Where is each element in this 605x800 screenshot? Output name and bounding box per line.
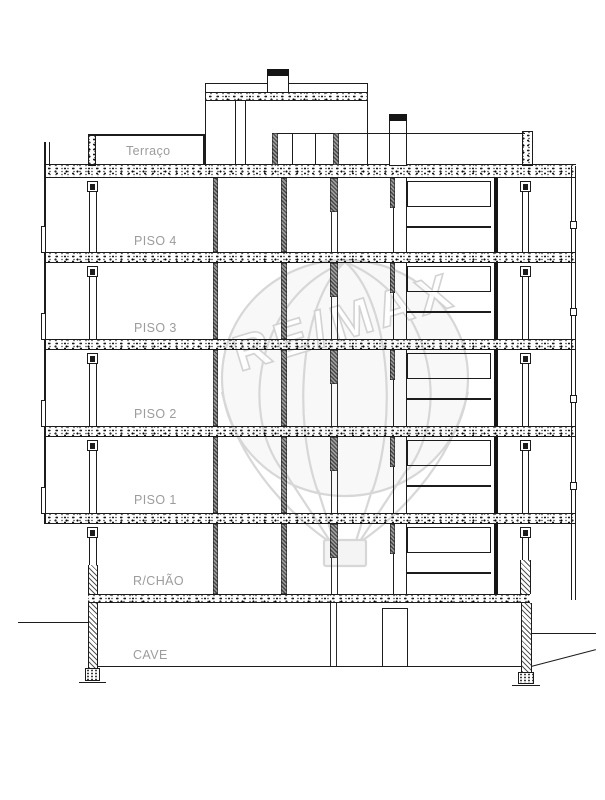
window-left — [89, 538, 97, 565]
floor-label: CAVE — [133, 648, 213, 664]
footing-right — [518, 672, 534, 684]
penthouse-mullion — [315, 133, 316, 165]
shaft-wall — [331, 297, 338, 339]
wall-line — [393, 208, 394, 252]
ground-line-left — [18, 622, 88, 623]
basement-door — [382, 608, 408, 666]
sill-wall-right — [520, 560, 531, 594]
shutter-box-dot — [90, 356, 95, 362]
sill-wall-left — [88, 565, 98, 594]
floor-label: PISO 2 — [134, 407, 214, 423]
window-left — [89, 277, 97, 339]
window-right — [522, 538, 530, 560]
floor-slab — [44, 513, 576, 524]
stair-wall — [494, 437, 498, 513]
footing-baseline-left — [79, 682, 106, 684]
stair-handrail — [407, 572, 491, 574]
window-right — [522, 451, 530, 513]
stair-handrail — [407, 226, 491, 228]
railing-cap-right — [570, 221, 578, 229]
shaft-lintel — [330, 524, 338, 558]
window-right — [522, 277, 530, 339]
wall-lintel — [390, 350, 395, 380]
penthouse-pier — [272, 133, 278, 165]
stair-handrail — [407, 485, 491, 487]
wall-line — [393, 554, 394, 594]
shaft-lintel — [330, 263, 338, 297]
floor-slab — [44, 339, 576, 350]
stair-wall — [494, 178, 498, 252]
terrace-parapet-wall-right — [522, 131, 533, 166]
window-left — [89, 364, 97, 426]
floor-label: PISO 3 — [134, 321, 214, 337]
window-right — [522, 192, 530, 252]
shaft-wall — [331, 471, 338, 513]
floor-slab — [88, 594, 530, 603]
railing-cap-right — [570, 395, 578, 403]
architectural-section-sheet: RE/MAX TerraçoPISO 4PISO 3PISO 2PISO 1R/… — [0, 0, 605, 800]
railing-cap-right — [570, 482, 578, 490]
wall-line — [393, 467, 394, 513]
basement-wall-left — [88, 603, 98, 668]
shutter-box-dot — [523, 269, 528, 275]
shutter-box-dot — [523, 530, 528, 536]
floor-slab — [44, 164, 576, 178]
floor-label: Terraço — [126, 144, 206, 160]
column — [281, 437, 287, 513]
wall-lintel — [390, 263, 395, 293]
stair-handrail — [407, 311, 491, 313]
chimney — [389, 114, 407, 166]
ground-line-right — [531, 633, 596, 634]
stair-flight — [407, 181, 491, 207]
window-left — [89, 451, 97, 513]
wall-line — [393, 380, 394, 426]
window-right — [522, 364, 530, 426]
shaft-wall — [331, 212, 338, 252]
terrace-parapet-top-right — [368, 133, 525, 135]
terrace-parapet-wall-left — [88, 135, 96, 166]
railing-left — [41, 487, 46, 514]
railing-cap-right — [570, 308, 578, 316]
shutter-box-dot — [90, 530, 95, 536]
terrace-parapet-top-left — [88, 134, 204, 136]
shutter-box-dot — [90, 184, 95, 190]
column — [281, 263, 287, 339]
penthouse-mullion — [292, 133, 293, 165]
footing-left — [85, 668, 100, 681]
column — [281, 524, 287, 594]
floor-slab — [44, 252, 576, 263]
basement-shaft-wall — [330, 603, 337, 666]
wall-lintel — [390, 524, 395, 554]
railing-left — [41, 313, 46, 340]
chimney-cap — [267, 69, 289, 76]
penthouse-partition — [245, 101, 246, 165]
floor-label: PISO 1 — [134, 493, 214, 509]
stair-wall — [494, 350, 498, 426]
shutter-box-dot — [90, 443, 95, 449]
stair-flight — [407, 527, 491, 553]
wall-line — [393, 293, 394, 339]
shaft-lintel — [330, 437, 338, 471]
shutter-box-dot — [523, 356, 528, 362]
column — [281, 178, 287, 252]
floor-label: PISO 4 — [134, 234, 214, 250]
railing-left — [41, 226, 46, 253]
wall-lintel — [390, 178, 395, 208]
stair-handrail — [407, 398, 491, 400]
floor-slab — [44, 426, 576, 437]
stair-flight — [407, 353, 491, 379]
penthouse-roof-slab — [205, 92, 368, 101]
chimney-cap — [389, 114, 407, 121]
railing-left — [41, 400, 46, 427]
shutter-box-dot — [523, 184, 528, 190]
stair-flight — [407, 266, 491, 292]
stair-flight — [407, 440, 491, 466]
wall-lintel — [390, 437, 395, 467]
penthouse-partition — [235, 101, 236, 165]
stair-wall — [494, 524, 498, 594]
shaft-wall — [331, 384, 338, 426]
ground-slope-right — [531, 649, 596, 667]
basement-wall-right — [521, 603, 532, 672]
footing-baseline-right — [512, 685, 540, 687]
penthouse-pier — [333, 133, 339, 165]
floor-label: R/CHÃO — [133, 574, 213, 590]
shaft-lintel — [330, 178, 338, 212]
shaft-wall — [331, 558, 338, 594]
shutter-box-dot — [90, 269, 95, 275]
balcony-edge-right — [571, 166, 577, 600]
shutter-box-dot — [523, 443, 528, 449]
basement-floor-line — [97, 666, 522, 668]
window-left — [89, 192, 97, 252]
column — [281, 350, 287, 426]
section-drawing: TerraçoPISO 4PISO 3PISO 2PISO 1R/CHÃOCAV… — [0, 0, 605, 800]
column — [213, 524, 218, 594]
stair-wall — [494, 263, 498, 339]
penthouse-window-head — [272, 133, 368, 134]
roof-parapet-left — [44, 142, 50, 166]
shaft-lintel — [330, 350, 338, 384]
